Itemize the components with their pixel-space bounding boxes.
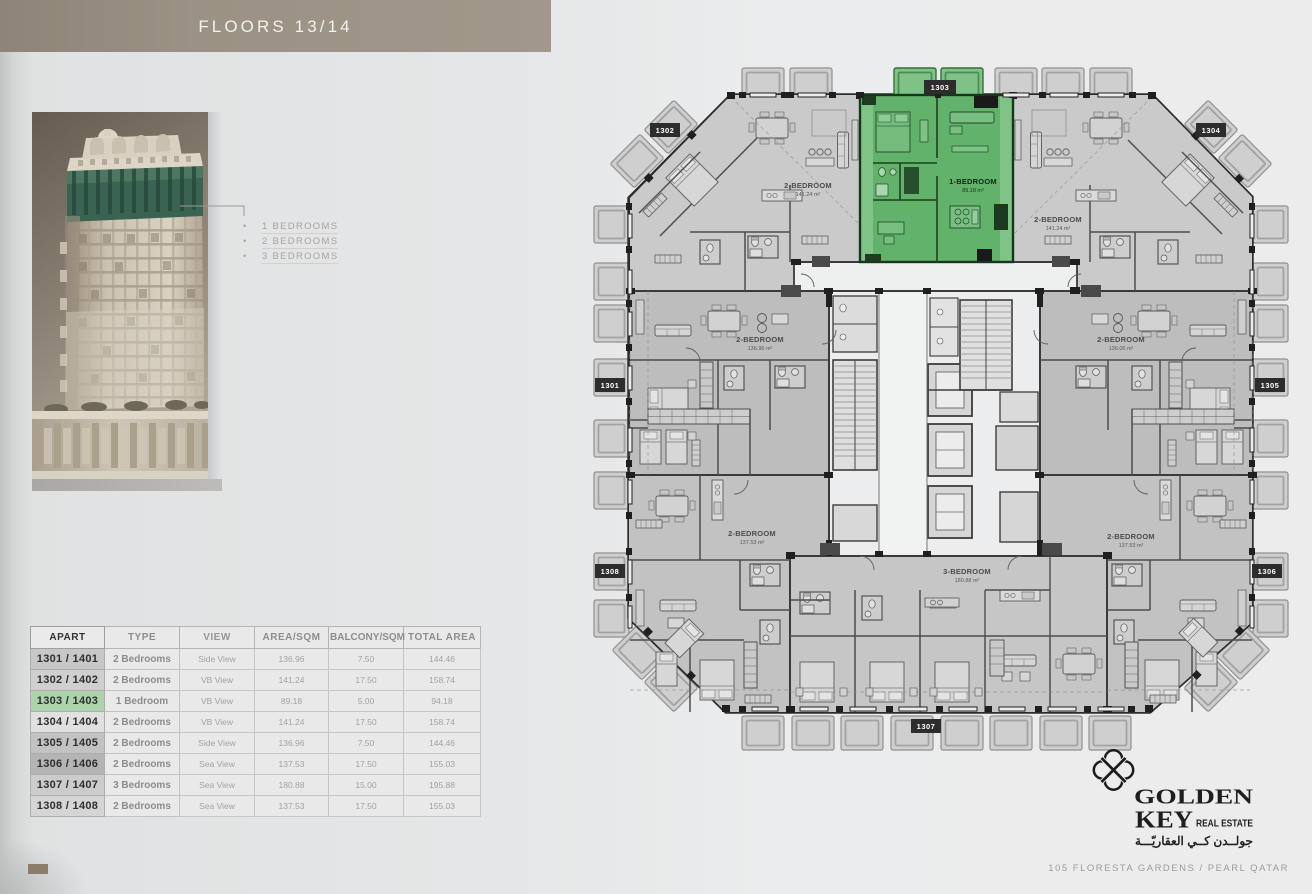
svg-text:137.53 m²: 137.53 m² <box>1119 543 1144 549</box>
svg-text:KEY: KEY <box>1135 808 1193 834</box>
svg-text:1-BEDROOM: 1-BEDROOM <box>949 177 997 186</box>
svg-text:136.96 m²: 136.96 m² <box>748 346 773 352</box>
svg-text:1302: 1302 <box>656 126 675 135</box>
svg-text:141.24 m²: 141.24 m² <box>1046 226 1071 232</box>
svg-text:1305: 1305 <box>1261 381 1280 390</box>
svg-text:180.88 m²: 180.88 m² <box>955 578 980 584</box>
svg-text:136.06 m²: 136.06 m² <box>1109 346 1134 352</box>
svg-text:1304: 1304 <box>1202 126 1221 135</box>
svg-text:1306: 1306 <box>1258 567 1277 576</box>
svg-text:2-BEDROOM: 2-BEDROOM <box>1107 532 1155 541</box>
svg-text:2-BEDROOM: 2-BEDROOM <box>1097 335 1145 344</box>
svg-text:137.53 m²: 137.53 m² <box>740 540 765 546</box>
svg-text:2-BEDROOM: 2-BEDROOM <box>1034 215 1082 224</box>
svg-text:2-BEDROOM: 2-BEDROOM <box>736 335 784 344</box>
svg-text:141.24 m²: 141.24 m² <box>796 192 821 198</box>
svg-text:جولــدن كــي العقاريّـــة: جولــدن كــي العقاريّـــة <box>1135 834 1253 849</box>
svg-text:1301: 1301 <box>601 381 620 390</box>
svg-text:GOLDEN: GOLDEN <box>1134 785 1253 809</box>
svg-text:89.18 m²: 89.18 m² <box>962 188 984 194</box>
svg-text:2-BEDROOM: 2-BEDROOM <box>784 181 832 190</box>
svg-text:1307: 1307 <box>917 722 936 731</box>
svg-text:3-BEDROOM: 3-BEDROOM <box>943 567 991 576</box>
svg-text:REAL ESTATE: REAL ESTATE <box>1196 818 1253 830</box>
svg-text:1303: 1303 <box>931 83 950 92</box>
svg-text:1308: 1308 <box>601 567 620 576</box>
svg-text:2-BEDROOM: 2-BEDROOM <box>728 529 776 538</box>
